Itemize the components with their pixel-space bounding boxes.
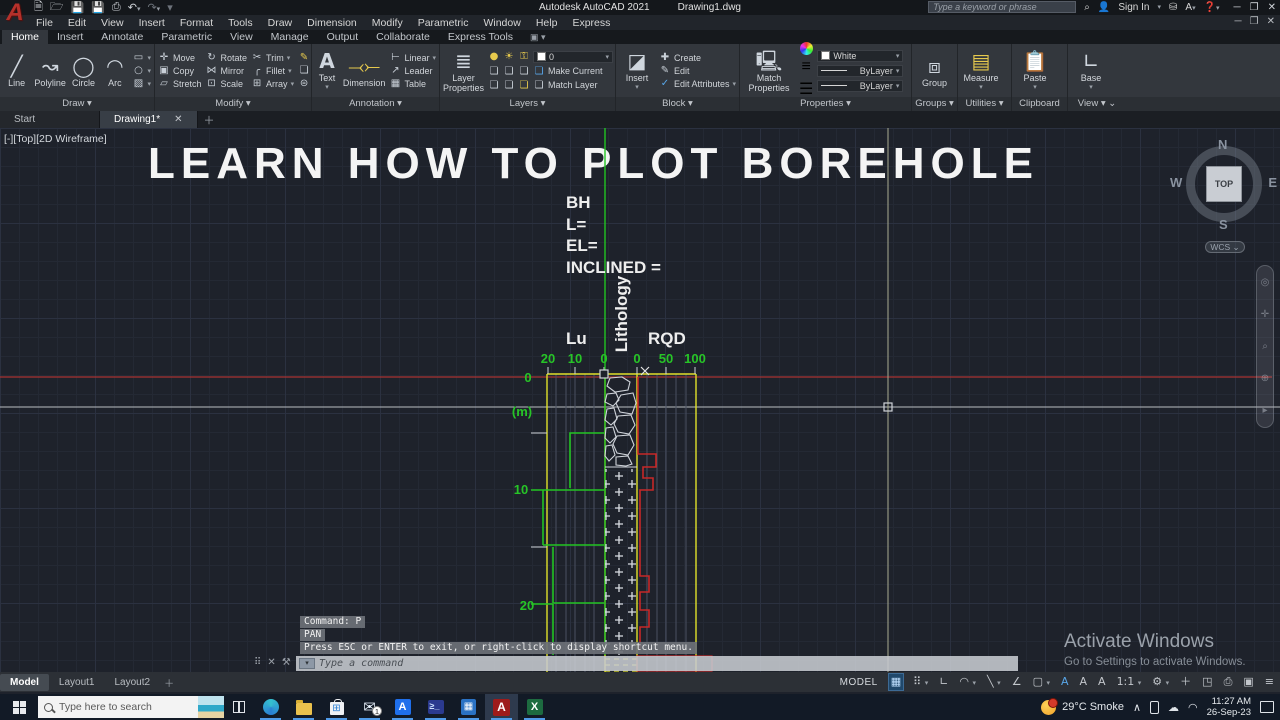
mail-badge: 1 (372, 706, 382, 716)
task-view-icon (233, 701, 245, 713)
match-layer-button[interactable]: Match Layer (548, 80, 598, 90)
new-layout-button[interactable]: ＋ (164, 675, 174, 690)
showmotion-icon[interactable]: ▸ (1262, 405, 1267, 416)
rqd-column-label: RQD (648, 329, 686, 348)
orbit-icon[interactable]: ⊕ (1261, 373, 1269, 384)
edit-attributes-button[interactable]: ✓Edit Attributes▾ (659, 78, 736, 89)
fillet-button[interactable]: ╭Fillet▾ (251, 65, 294, 76)
bh-label: BH (566, 193, 591, 212)
grid-display-icon[interactable]: ▦ (888, 673, 904, 691)
menu-format[interactable]: Format (180, 17, 213, 29)
menu-parametric[interactable]: Parametric (418, 17, 469, 29)
hatch-button[interactable]: ▨▾ (132, 78, 151, 89)
viewcube[interactable]: TOP N W E S (1186, 146, 1262, 222)
leader-button[interactable]: ↗Leader (389, 65, 436, 76)
close-button[interactable]: ✕ (1268, 2, 1276, 13)
trim-button[interactable]: ✂Trim▾ (251, 52, 294, 63)
search-highlight-image[interactable] (198, 696, 224, 718)
action-center-icon[interactable] (1260, 701, 1274, 713)
plot-icon[interactable]: ⎙ (112, 1, 121, 14)
layer-on-icon[interactable]: ● (488, 51, 500, 62)
hatch-icon: ▨ (132, 78, 144, 89)
navigation-bar[interactable]: ◎ ✛ ⌕ ⊕ ▸ (1256, 265, 1274, 428)
taskbar-app-excel[interactable]: X (518, 694, 551, 720)
ribbon-tab-express-tools[interactable]: Express Tools (439, 30, 522, 44)
base-icon: ∟ (1083, 49, 1100, 73)
object-snap-icon[interactable]: ▢ ▾ (1031, 674, 1052, 691)
scale-icon: ⊡ (206, 78, 218, 89)
linetype-dropdown[interactable]: ByLayer▾ (817, 80, 903, 92)
layout2-tab[interactable]: Layout2 (104, 674, 160, 691)
banner-title: LEARN HOW TO PLOT BOREHOLE (148, 139, 1039, 188)
make-current-button[interactable]: Make Current (548, 66, 603, 76)
zoom-icon[interactable]: ⌕ (1262, 341, 1268, 352)
your-phone-icon[interactable] (1150, 701, 1159, 714)
table-button[interactable]: ▦Table (389, 78, 436, 89)
app-store-cart-icon[interactable]: ⛁ (1169, 2, 1177, 13)
windows-taskbar: ✉1 A ≥_ ▦ A X 29°C Smoke ∧ ☁ ◠ 11:27 AM … (0, 694, 1280, 720)
layer-off-icon[interactable]: ❏ (518, 66, 530, 77)
command-bar-grip[interactable]: ⠿ (254, 657, 261, 668)
autocad-app-logo[interactable]: A (2, 0, 28, 28)
doc-minimize-button[interactable]: ─ (1235, 16, 1242, 27)
circle-button[interactable]: ◯Circle (70, 46, 97, 96)
create-block-icon: ✚ (659, 52, 671, 63)
copy-icon: ▣ (158, 65, 170, 76)
panel-block: ◪Insert▾ ✚Create ✎Edit ✓Edit Attributes▾ (616, 44, 740, 97)
lu-column-label: Lu (566, 329, 587, 348)
layer-thaw-icon[interactable]: ☀ (503, 51, 515, 62)
lithology-boulder-pattern (605, 377, 637, 467)
ribbon-tab-annotate[interactable]: Annotate (92, 30, 152, 44)
trim-icon: ✂ (251, 52, 263, 63)
model-space-indicator[interactable]: MODEL (840, 677, 878, 688)
viewcube-north[interactable]: N (1218, 137, 1227, 152)
panel-label-properties[interactable]: Properties ▾ (740, 97, 912, 111)
qat-customize-icon[interactable]: ▾ (167, 1, 173, 14)
isodraft-icon[interactable]: ╲ ▾ (985, 674, 1003, 691)
command-bar-close-icon[interactable]: ✕ (267, 657, 275, 668)
move-button[interactable]: ✛Move (158, 52, 202, 63)
command-history-line: PAN (300, 629, 325, 641)
taskbar-search-icon (44, 703, 53, 712)
help-search-input[interactable] (928, 1, 1076, 13)
undo-icon[interactable]: ↶▾ (128, 1, 141, 14)
layer-walk-icon[interactable]: ❏ (488, 80, 500, 91)
powershell-icon: ≥_ (428, 700, 444, 714)
ribbon: ╱Line ↝Polyline ◯Circle ◠Arc ▭▾ ○▾ ▨▾ ✛M… (0, 44, 1280, 97)
panel-annotation: AText▾ ⤙⤚Dimension ⊢Linear▾ ↗Leader ▦Tab… (312, 44, 440, 97)
edit-attributes-icon: ✓ (659, 78, 671, 89)
weather-text: 29°C Smoke (1062, 701, 1124, 713)
menu-express[interactable]: Express (572, 17, 610, 29)
viewcube-top-face[interactable]: TOP (1206, 166, 1242, 202)
command-history-line: Command: P (300, 616, 365, 628)
lu-tick-10: 10 (568, 351, 582, 366)
insert-button[interactable]: ◪Insert▾ (619, 46, 655, 96)
signin-user-icon[interactable]: 👤 (1098, 2, 1110, 13)
measure-icon: ▤ (972, 49, 991, 73)
mirror-icon: ⋈ (206, 65, 218, 76)
rectangle-icon: ▭ (132, 52, 144, 63)
file-tab-close-icon[interactable]: ✕ (174, 114, 182, 125)
group-icon: ⧈ (928, 54, 941, 78)
layer-unisolate-icon[interactable]: ❏ (503, 80, 515, 91)
ribbon-tab-home[interactable]: Home (2, 30, 48, 44)
rotate-button[interactable]: ↻Rotate (206, 52, 248, 63)
layer-unlock-icon[interactable]: ⚿ (518, 51, 530, 62)
explode-button[interactable]: ❏ (298, 65, 310, 76)
copy-button[interactable]: ▣Copy (158, 65, 202, 76)
panel-modify: ✛Move ▣Copy ▱Stretch ↻Rotate ⋈Mirror ⊡Sc… (155, 44, 312, 97)
create-block-button[interactable]: ✚Create (659, 52, 736, 63)
menu-draw[interactable]: Draw (268, 17, 293, 29)
autoscale-icon[interactable]: A (1078, 674, 1090, 690)
panel-view: ∟Base▾ (1068, 44, 1126, 97)
measure-button[interactable]: ▤Measure▾ (961, 46, 1001, 96)
panel-label-view[interactable]: View ▾ ⌄ (1068, 97, 1126, 111)
rectangle-button[interactable]: ▭▾ (132, 52, 151, 63)
stretch-button[interactable]: ▱Stretch (158, 78, 202, 89)
match-properties-icon: 🖳 (756, 49, 783, 73)
arc-icon: ◠ (106, 54, 123, 78)
layer-prev-icon[interactable]: ❏ (518, 80, 530, 91)
osnap-tracking-icon[interactable]: ∠ (1010, 674, 1024, 690)
circle-icon: ◯ (72, 54, 94, 78)
command-bar[interactable]: ▾ (296, 656, 1018, 671)
linear-icon: ⊢ (389, 52, 401, 63)
overkill-button[interactable]: ⊜ (298, 78, 310, 89)
search-icon[interactable]: ⌕ (1084, 2, 1090, 13)
save-icon[interactable]: 💾 (71, 1, 85, 14)
calculator-icon: ▦ (461, 699, 476, 715)
command-history-line: Press ESC or ENTER to exit, or right-cli… (300, 642, 697, 654)
pan-icon[interactable]: ✛ (1261, 309, 1269, 320)
model-tab[interactable]: Model (0, 674, 49, 691)
menu-file[interactable]: File (36, 17, 53, 29)
clock-time: 11:27 AM (1207, 696, 1251, 707)
layer-lock-icon[interactable]: ❏ (533, 66, 545, 77)
panel-label-groups[interactable]: Groups ▾ (912, 97, 958, 111)
paste-button[interactable]: 📋Paste▾ (1015, 46, 1055, 96)
text-button[interactable]: AText▾ (315, 46, 339, 96)
lu-tick-0: 0 (600, 351, 607, 366)
menu-dimension[interactable]: Dimension (307, 17, 357, 29)
taskbar-app-autocad-web[interactable]: A (386, 694, 419, 720)
polyline-button[interactable]: ↝Polyline (34, 46, 66, 96)
ortho-mode-icon[interactable]: ∟ (937, 674, 950, 690)
onedrive-cloud-icon[interactable]: ☁ (1168, 701, 1179, 714)
depth-0-label: 0 (524, 370, 531, 385)
panel-clipboard: 📋Paste▾ (1012, 44, 1068, 97)
panel-label-clipboard[interactable]: Clipboard (1012, 97, 1068, 111)
base-button[interactable]: ∟Base▾ (1071, 46, 1111, 96)
wcs-selector[interactable]: WCS ⌄ (1205, 241, 1245, 253)
match-properties-button[interactable]: 🖳Match Properties (743, 46, 795, 96)
length-label: L= (566, 215, 586, 234)
panel-utilities: ▤Measure▾ (958, 44, 1012, 97)
array-icon: ⊞ (251, 78, 263, 89)
edit-block-icon: ✎ (659, 65, 671, 76)
taskbar-app-store[interactable] (320, 694, 353, 720)
dimension-icon: ⤙⤚ (348, 54, 380, 78)
plot-status-icon[interactable]: ⎙ (1222, 674, 1235, 690)
current-scale-indicator[interactable]: 1:1 ▾ (1115, 674, 1144, 691)
erase-icon: ✎ (298, 52, 310, 63)
menu-bar: File Edit View Insert Format Tools Draw … (0, 15, 1280, 30)
save-as-icon[interactable]: 💾 (91, 1, 105, 14)
minimize-button[interactable]: ─ (1234, 2, 1241, 13)
help-icon[interactable]: ❓▾ (1204, 2, 1220, 13)
file-tab-start[interactable]: Start (0, 111, 100, 128)
windows-logo-icon (13, 701, 26, 714)
isolate-objects-icon[interactable]: ◳ (1200, 674, 1214, 690)
doc-title: Drawing1.dwg (678, 2, 741, 13)
ellipse-button[interactable]: ○▾ (132, 65, 151, 76)
ribbon-panel-labels: Draw ▾ Modify ▾ Annotation ▾ Layers ▾ Bl… (0, 97, 1280, 111)
depth-10-label: 10 (514, 482, 528, 497)
taskbar-search-input[interactable] (59, 701, 177, 713)
rqd-tick-50: 50 (659, 351, 673, 366)
erase-button[interactable]: ✎ (298, 52, 310, 63)
arc-button[interactable]: ◠Arc (101, 46, 128, 96)
taskbar-app-mail[interactable]: ✉1 (353, 694, 386, 720)
ribbon-tab-output[interactable]: Output (318, 30, 368, 44)
menu-tools[interactable]: Tools (228, 17, 253, 29)
weather-widget[interactable]: 29°C Smoke (1041, 700, 1124, 715)
file-tab-bar: Start Drawing1*✕ ＋ (0, 111, 1280, 128)
polar-tracking-icon[interactable]: ◠ ▾ (957, 674, 978, 691)
panel-label-modify[interactable]: Modify ▾ (155, 97, 312, 111)
layer-isolate-icon[interactable]: ❏ (488, 66, 500, 77)
lineweight-icon[interactable]: ≡ (802, 58, 811, 76)
layer-properties-button[interactable]: ≣Layer Properties (443, 46, 484, 96)
drawing-canvas[interactable]: [-][Top][2D Wireframe] LEARN HOW TO PLOT… (0, 128, 1280, 672)
scale-button[interactable]: ⊡Scale (206, 78, 248, 89)
command-input[interactable] (319, 658, 1015, 669)
linear-button[interactable]: ⊢Linear▾ (389, 52, 436, 63)
line-icon: ╱ (11, 54, 23, 78)
snap-mode-icon[interactable]: ⠿ ▾ (911, 674, 930, 691)
excel-icon: X (527, 699, 543, 715)
lithology-column-label: Lithology (612, 275, 631, 352)
edit-block-button[interactable]: ✎Edit (659, 65, 736, 76)
panel-label-annotation[interactable]: Annotation ▾ (312, 97, 440, 111)
ribbon-display-toggle-icon[interactable]: ▣ ▾ (530, 30, 546, 44)
status-toggles: MODEL ▦ ⠿ ▾ ∟ ◠ ▾ ╲ ▾ ∠ ▢ ▾ A A A 1:1 ▾ … (840, 673, 1276, 691)
panel-groups: ⧈Group (912, 44, 958, 97)
annotation-scale-icon[interactable]: A (1096, 674, 1108, 690)
mirror-button[interactable]: ⋈Mirror (206, 65, 248, 76)
overkill-icon: ⊜ (298, 78, 310, 89)
command-bar-customize-icon[interactable]: ⚒ (282, 657, 291, 668)
redo-icon[interactable]: ↷▾ (147, 1, 160, 14)
stretch-icon: ▱ (158, 78, 170, 89)
edge-icon (263, 699, 279, 715)
signin-dropdown-icon[interactable]: ▾ (1157, 3, 1161, 11)
task-view-button[interactable] (224, 694, 254, 720)
menu-edit[interactable]: Edit (68, 17, 86, 29)
panel-label-utilities[interactable]: Utilities ▾ (958, 97, 1012, 111)
taskbar-app-calculator[interactable]: ▦ (452, 694, 485, 720)
autodesk-a-icon[interactable]: A▾ (1185, 2, 1195, 13)
taskbar-clock[interactable]: 11:27 AM 26-Sep-23 (1207, 696, 1251, 718)
menu-view[interactable]: View (101, 17, 124, 29)
autocad-web-icon: A (395, 699, 411, 715)
viewcube-east[interactable]: E (1268, 175, 1277, 190)
ellipse-icon: ○ (132, 65, 144, 76)
taskbar-app-explorer[interactable] (287, 694, 320, 720)
signin-label[interactable]: Sign In (1118, 2, 1149, 13)
panel-properties: 🖳Match Properties ≡ ☰ White▾ ByLayer▾ By… (740, 44, 912, 97)
line-button[interactable]: ╱Line (3, 46, 30, 96)
command-prompt-icon[interactable]: ▾ (299, 658, 315, 669)
command-history: Command: P PAN Press ESC or ENTER to exi… (300, 616, 697, 654)
menu-insert[interactable]: Insert (139, 17, 165, 29)
weather-icon (1041, 700, 1056, 715)
file-tab-drawing1[interactable]: Drawing1*✕ (100, 111, 198, 128)
ribbon-tab-parametric[interactable]: Parametric (152, 30, 221, 44)
layer-properties-icon: ≣ (455, 49, 472, 73)
autocad-window: A 🗎 🗁 💾 💾 ⎙ ↶▾ ↷▾ ▾ Autodesk AutoCAD 202… (0, 0, 1280, 720)
autocad-icon: A (493, 699, 510, 716)
wifi-icon[interactable]: ◠ (1188, 701, 1198, 714)
depth-unit-label: (m) (512, 404, 532, 419)
menu-modify[interactable]: Modify (372, 17, 403, 29)
ribbon-tab-collaborate[interactable]: Collaborate (367, 30, 439, 44)
panel-label-block[interactable]: Block ▾ (616, 97, 740, 111)
leader-icon: ↗ (389, 65, 401, 76)
status-bar: Model Layout1 Layout2 ＋ MODEL ▦ ⠿ ▾ ∟ ◠ … (0, 672, 1280, 692)
color-dropdown[interactable]: White▾ (817, 50, 903, 62)
panel-label-draw[interactable]: Draw ▾ (0, 97, 155, 111)
table-icon: ▦ (389, 78, 401, 89)
restore-button[interactable]: ❐ (1250, 2, 1259, 13)
depth-20-label: 20 (520, 598, 534, 613)
lineweight-dropdown[interactable]: ByLayer▾ (817, 65, 903, 77)
explode-icon: ❏ (298, 65, 310, 76)
lu-tick-20: 20 (541, 351, 555, 366)
borehole-drawing: LEARN HOW TO PLOT BOREHOLE (0, 128, 1280, 672)
layer-color-swatch (537, 52, 546, 61)
viewcube-west[interactable]: W (1170, 175, 1182, 190)
polyline-icon: ↝ (42, 54, 59, 78)
customization-menu-icon[interactable]: ≡ (1263, 674, 1276, 690)
linetype-icon[interactable]: ☰ (799, 79, 813, 99)
color-wheel-icon[interactable] (800, 42, 813, 55)
panel-layers: ≣Layer Properties ● ☀ ⚿ 0▾ ❏ ❏ ❏ ❏ Make (440, 44, 616, 97)
taskbar-app-edge[interactable] (254, 694, 287, 720)
group-button[interactable]: ⧈Group (915, 46, 954, 96)
file-explorer-icon (296, 703, 312, 715)
clock-date: 26-Sep-23 (1207, 707, 1251, 718)
taskbar-search[interactable] (38, 696, 224, 718)
start-button[interactable] (0, 694, 38, 720)
text-icon: A (319, 49, 334, 73)
menu-help[interactable]: Help (536, 17, 558, 29)
layer-dropdown[interactable]: 0▾ (533, 51, 613, 63)
viewcube-south[interactable]: S (1219, 217, 1228, 232)
workspace-gear-icon[interactable]: ⚙ ▾ (1150, 674, 1171, 691)
layer-merge-icon[interactable]: ❏ (533, 80, 545, 91)
insert-block-icon: ◪ (628, 49, 647, 73)
ribbon-tab-insert[interactable]: Insert (48, 30, 92, 44)
panel-draw: ╱Line ↝Polyline ◯Circle ◠Arc ▭▾ ○▾ ▨▾ (0, 44, 155, 97)
rqd-tick-100: 100 (684, 351, 706, 366)
rqd-tick-0: 0 (633, 351, 640, 366)
elevation-label: EL= (566, 236, 598, 255)
new-drawing-tab-button[interactable]: ＋ (204, 112, 215, 128)
dimension-button[interactable]: ⤙⤚Dimension (343, 46, 386, 96)
doc-close-button[interactable]: ✕ (1267, 16, 1275, 27)
move-icon: ✛ (158, 52, 170, 63)
clean-screen-icon[interactable]: ▣ (1241, 674, 1255, 690)
fillet-icon: ╭ (251, 65, 263, 76)
panel-label-layers[interactable]: Layers ▾ (440, 97, 616, 111)
microsoft-store-icon (330, 702, 344, 715)
layout1-tab[interactable]: Layout1 (49, 674, 105, 691)
ribbon-tab-manage[interactable]: Manage (262, 30, 318, 44)
grip-square-top[interactable] (600, 370, 608, 378)
command-bar-controls: ⠿ ✕ ⚒ (254, 657, 291, 668)
ribbon-tab-view[interactable]: View (221, 30, 262, 44)
tray-expand-icon[interactable]: ∧ (1133, 701, 1141, 714)
paste-icon: 📋 (1023, 49, 1048, 73)
title-bar: A 🗎 🗁 💾 💾 ⎙ ↶▾ ↷▾ ▾ Autodesk AutoCAD 202… (0, 0, 1280, 15)
activate-windows-watermark: Activate Windows Go to Settings to activ… (1064, 631, 1246, 668)
doc-restore-button[interactable]: ❐ (1250, 16, 1259, 27)
inclined-label: INCLINED = (566, 258, 661, 277)
annotation-monitor-icon[interactable]: ＋ (1178, 674, 1193, 690)
app-title: Autodesk AutoCAD 2021 (539, 2, 650, 13)
taskbar-app-autocad[interactable]: A (485, 694, 518, 720)
system-tray: 29°C Smoke ∧ ☁ ◠ 11:27 AM 26-Sep-23 (1041, 694, 1274, 720)
rotate-icon: ↻ (206, 52, 218, 63)
array-button[interactable]: ⊞Array▾ (251, 78, 294, 89)
layer-freeze-icon[interactable]: ❏ (503, 66, 515, 77)
annotation-visibility-icon[interactable]: A (1059, 674, 1071, 690)
taskbar-app-powershell[interactable]: ≥_ (419, 694, 452, 720)
menu-window[interactable]: Window (483, 17, 520, 29)
steering-wheel-icon[interactable]: ◎ (1261, 277, 1270, 288)
ribbon-tab-bar: Home Insert Annotate Parametric View Man… (0, 30, 1280, 44)
